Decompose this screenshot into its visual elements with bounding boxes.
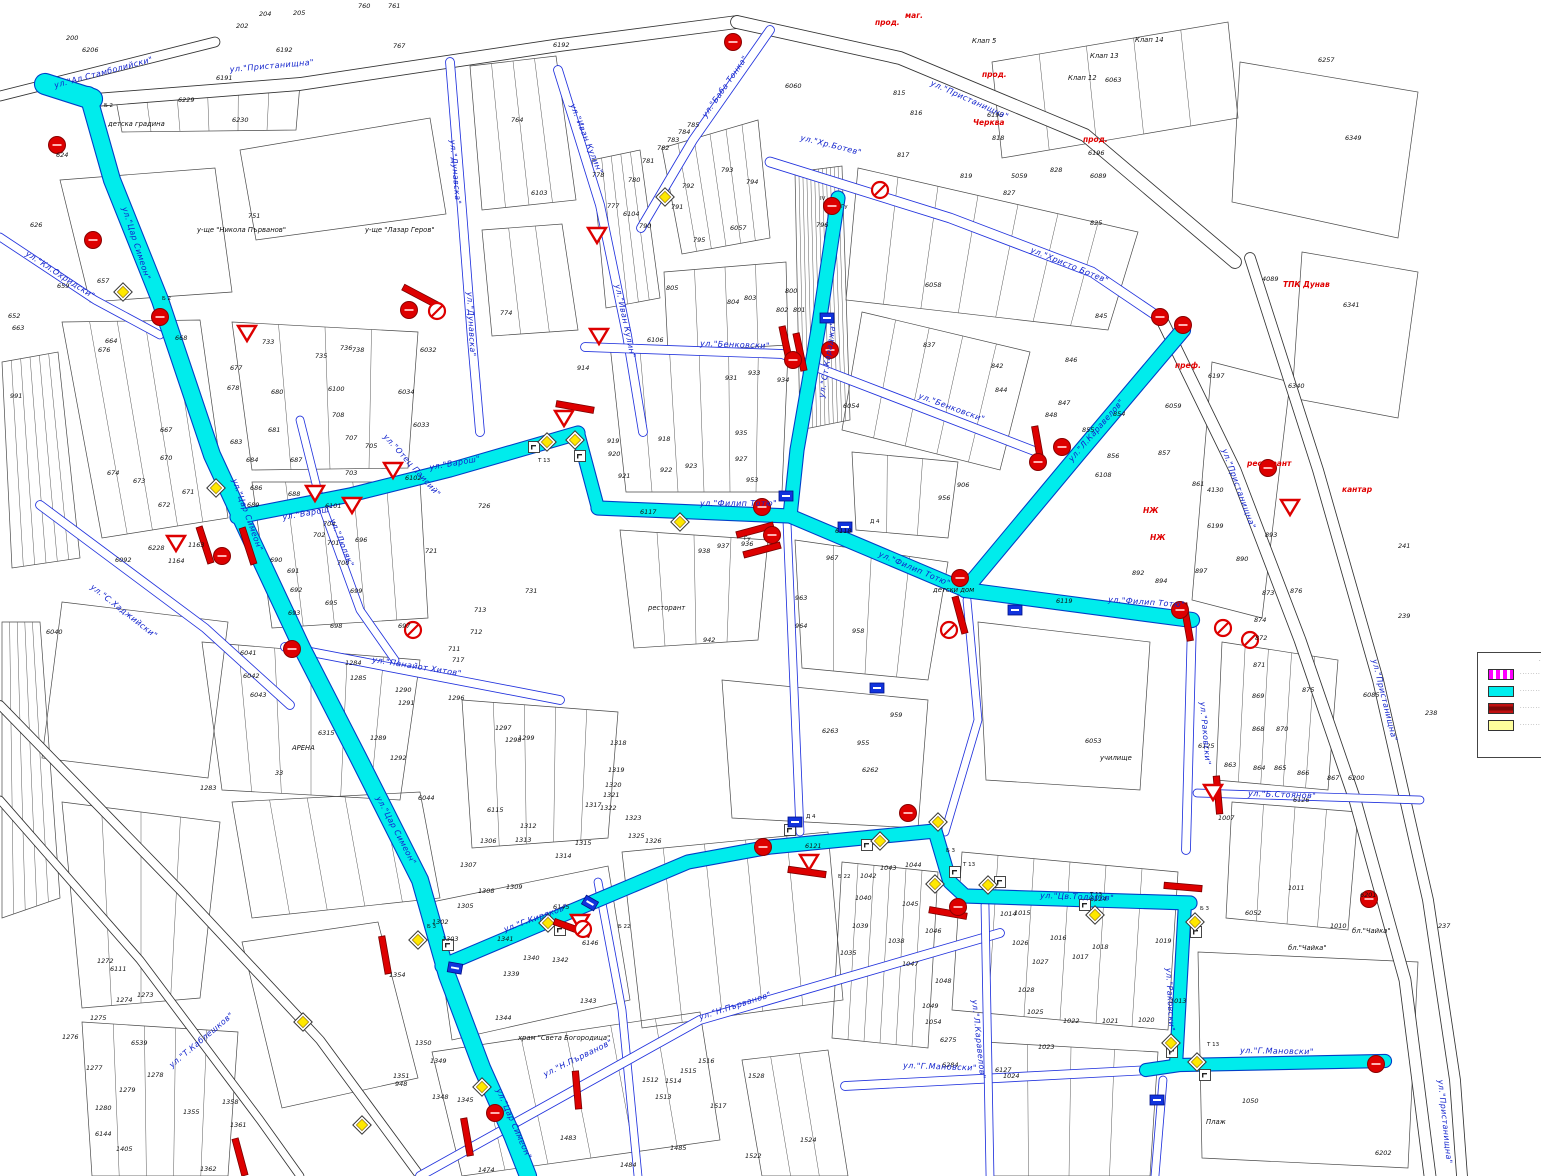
parcel-number: 825 (1090, 219, 1102, 227)
parcel-number: 1320 (605, 781, 622, 789)
poi-label: у-ще "Лазар Геров" (364, 226, 434, 234)
road-surface (787, 522, 800, 832)
parcel-number: 1358 (222, 1098, 239, 1106)
parcel-number: 1047 (902, 960, 919, 968)
stop-sign-icon (1030, 454, 1047, 471)
street-name-label: ул."Г.Мановски" (1239, 1046, 1314, 1056)
parcel-number: 708 (332, 411, 344, 419)
parcel-number: 1319 (608, 766, 625, 774)
poi-label: у-ще "Никола Първанов" (196, 226, 286, 234)
parcel-number: 6040 (46, 628, 63, 636)
stop-sign-icon (85, 232, 102, 249)
parcel-number: 1326 (645, 837, 662, 845)
no-entry-bar-icon (572, 1071, 582, 1109)
parcel-number: 953 (746, 476, 758, 484)
sign-code: Т 13 (537, 458, 551, 464)
parcel-number: 1284 (345, 659, 362, 667)
map-legend: ····· ··································… (1477, 652, 1541, 758)
poi-label: Клап 13 (1090, 52, 1119, 60)
priority-road-diamond-icon (409, 931, 427, 949)
parcel-number: 6058 (925, 281, 942, 289)
parcel-line (325, 327, 330, 469)
parcel-number: 874 (1254, 616, 1266, 624)
street-name-label: ул."Дунавска" (465, 291, 477, 357)
parcel-number: 870 (1276, 725, 1288, 733)
parcel-number: 1024 (1003, 1072, 1020, 1080)
parcel-number: 6146 (582, 939, 599, 947)
no-parking-icon (872, 182, 888, 198)
parcel-number: 1028 (1018, 986, 1035, 994)
parcel-number: 1308 (478, 887, 495, 895)
poi-label: ресторант (647, 604, 686, 612)
parcel-number: 686 (250, 484, 262, 492)
parcel-number: 869 (1252, 692, 1264, 700)
parcel-number: 1035 (840, 949, 857, 957)
parcel-line (727, 538, 731, 643)
parcel-number: 738 (352, 346, 364, 354)
stop-sign-icon (1368, 1056, 1385, 1073)
parcel-number: 683 (230, 438, 242, 446)
parcel-number: 933 (748, 369, 760, 377)
parcel-line (996, 205, 1018, 318)
parcel-number: 663 (12, 324, 24, 332)
parcel-number: 33 (275, 769, 283, 777)
parcel-number: 4130 (1207, 486, 1224, 494)
parcel-number: 818 (992, 134, 1004, 142)
parcel-number: 1043 (880, 864, 897, 872)
poi-label-red: ресторант (1246, 459, 1292, 468)
parcel-number: 1274 (116, 996, 133, 1004)
sign-plate-icon (575, 451, 586, 462)
parcel-line (102, 807, 112, 1006)
parcel-number: 894 (1155, 577, 1167, 585)
legend-swatch-magenta-icon (1488, 669, 1514, 680)
poi-label: бл."Чайка" (1288, 944, 1326, 952)
parcel-number: 6117 (640, 508, 657, 516)
parcel-number: 937 (717, 542, 730, 550)
parcel-number: 5059 (1011, 172, 1028, 180)
parcel-number: 844 (995, 386, 1007, 394)
street-name-label: ул."Баба Тонка" (700, 54, 750, 120)
parcel-line (704, 844, 722, 1017)
parcel-number: 6341 (1343, 301, 1360, 309)
parcel-number: 819 (960, 172, 972, 180)
parcel-line (144, 1026, 146, 1176)
parcel-number: 1314 (555, 852, 572, 860)
parcel-number: 241 (1398, 542, 1410, 550)
parcel-number: 780 (628, 176, 640, 184)
parcel-line (1039, 54, 1049, 150)
road-surface (95, 22, 737, 100)
parcel-number: 1309 (506, 883, 523, 891)
parcel-number: 921 (618, 472, 630, 480)
parcel-number: 1272 (97, 957, 114, 965)
parcel-number: 1299 (518, 734, 535, 742)
street-name-label: ул."Филип Тотю" (699, 499, 777, 508)
sign-code: Гу (744, 536, 751, 542)
parcel-line (1318, 810, 1327, 928)
parcel-number: 991 (10, 392, 22, 400)
parcel-line (535, 59, 553, 203)
parcel-number: 1351 (393, 1072, 410, 1080)
parcel-block (242, 922, 418, 1108)
street-name-label: ул."Пристанищна" (228, 58, 314, 74)
parcel-number: 815 (893, 89, 905, 97)
parcel-number: 761 (388, 2, 400, 10)
parcel-number: 868 (1252, 725, 1264, 733)
parcel-number: 935 (735, 429, 747, 437)
parcel-number: 6191 (216, 74, 233, 82)
parcel-number: 6192 (276, 46, 293, 54)
parcel-number: 6063 (1105, 76, 1122, 84)
parcel-number: 1517 (710, 1102, 727, 1110)
legend-label: ·········· (1520, 688, 1541, 694)
parcel-number: 964 (795, 622, 807, 630)
parcel-number: 670 (160, 454, 172, 462)
parcel-number: 713 (474, 606, 486, 614)
parcel-number: 6115 (487, 806, 504, 814)
parcel-number: 1163 (188, 541, 205, 549)
legend-swatch-yellow-icon (1488, 720, 1514, 731)
info-sign-icon (820, 313, 834, 323)
parcel-number: 1022 (1063, 1017, 1080, 1025)
parcel-number: 690 (270, 556, 282, 564)
parcel-number: 1344 (495, 1014, 512, 1022)
street-name-label: ул."Хр.Ботев" (799, 133, 863, 157)
parcel-number: 785 (687, 121, 699, 129)
parcel-line (513, 61, 529, 205)
yield-triangle-icon (800, 855, 818, 870)
no-parking-icon (941, 622, 957, 638)
street-name-label: ул."Кл.Охридски" (23, 249, 96, 301)
parcel-line (39, 355, 57, 561)
parcel-number: 1524 (800, 1136, 817, 1144)
stop-sign-icon (824, 198, 841, 215)
parcel-number: 1340 (523, 954, 540, 962)
parcel-line (1287, 807, 1295, 924)
stop-sign-icon (900, 805, 917, 822)
parcel-line (756, 265, 759, 347)
parcel-number: 955 (857, 739, 869, 747)
legend-item: ·········· (1488, 719, 1541, 731)
parcel-number: 1021 (1102, 1017, 1119, 1025)
street-name-label: ул."Ал.Стамболийски" (52, 55, 154, 90)
poi-label-red: прод. (875, 18, 900, 27)
parcel-number: 1283 (200, 784, 217, 792)
yield-triangle-icon (343, 498, 361, 513)
parcel-number: 4089 (1262, 275, 1279, 283)
parcel-number: 6349 (1345, 134, 1362, 142)
parcel-number: 791 (671, 203, 683, 211)
road-casing (1250, 258, 1462, 1176)
no-parking-icon (1215, 620, 1231, 636)
parcel-number: 783 (667, 136, 679, 144)
parcel-number: 6229 (178, 96, 195, 104)
road-surface (300, 420, 395, 660)
parcel-number: 1349 (430, 1057, 447, 1065)
parcel-block (1232, 62, 1418, 238)
sign-code: IV (820, 196, 826, 202)
parcel-number: 871 (1253, 661, 1265, 669)
parcel-number: 1010 (1330, 922, 1347, 930)
sign-code: Б 3 (427, 924, 437, 930)
parcel-number: 1306 (480, 837, 497, 845)
parcel-number: 927 (735, 455, 748, 463)
sign-code: Б 22 (618, 924, 631, 930)
parcel-line (937, 336, 963, 454)
parcel-number: 6340 (1288, 382, 1305, 390)
parcel-number: 792 (682, 182, 694, 190)
parcel-line (657, 533, 665, 647)
parcel-block (1292, 252, 1418, 418)
parcel-line (897, 557, 910, 678)
parcel-number: 1339 (503, 970, 520, 978)
parcel-number: 876 (1290, 587, 1302, 595)
parcel-line (1257, 805, 1264, 922)
parcel-number: 6054 (843, 402, 860, 410)
parcel-number: 200 (66, 34, 78, 42)
parcel-number: 1350 (415, 1039, 432, 1047)
parcel-block (482, 224, 578, 336)
stop-sign-icon (284, 641, 301, 658)
parcel-number: 6092 (115, 556, 132, 564)
parcel-line (345, 796, 365, 906)
parcel-number: 6044 (418, 794, 435, 802)
parcel-number: 938 (698, 547, 710, 555)
parcel-number: 837 (923, 341, 936, 349)
parcel-line (581, 710, 587, 840)
parcel-number: 6263 (822, 727, 839, 735)
parcel-number: 1292 (390, 754, 407, 762)
info-sign-icon (788, 817, 802, 827)
parcel-number: 847 (1058, 399, 1071, 407)
parcel-number: 6539 (131, 1039, 148, 1047)
parcel-line (771, 1057, 791, 1176)
parcel-number: 846 (1065, 356, 1077, 364)
sign-code: Б 3 (946, 848, 956, 854)
parcel-number: 805 (666, 284, 678, 292)
parcel-block (795, 540, 948, 680)
parcel-line (492, 64, 506, 208)
stop-sign-icon (1175, 317, 1192, 334)
yield-triangle-icon (590, 329, 608, 344)
poi-label-red: НЖ (1150, 533, 1166, 542)
parcel-number: 705 (365, 442, 377, 450)
parcel-number: 688 (288, 490, 300, 498)
street-name-label: ул."Филип Тотю" (876, 549, 951, 588)
parcel-number: 6230 (232, 116, 249, 124)
road-surface (1250, 258, 1462, 1176)
parcel-number: 919 (607, 437, 619, 445)
parcel-number: 6201 (1360, 891, 1377, 899)
parcel-number: 6033 (413, 421, 430, 429)
parcel-number: 6106 (647, 336, 664, 344)
parcel-line (787, 836, 803, 1006)
parcel-number: 956 (938, 494, 950, 502)
legend-label: ·········· (1520, 722, 1541, 728)
parcel-block (978, 622, 1150, 790)
parcel-line (864, 865, 874, 1041)
parcel-number: 205 (293, 9, 305, 17)
parcel-block (462, 700, 618, 848)
parcel-number: 1273 (137, 991, 154, 999)
parcel-line (695, 270, 699, 351)
parcel-number: 693 (288, 609, 300, 617)
parcel-line (799, 1053, 819, 1176)
parcel-line (694, 139, 711, 249)
parcel-number: 6119 (1056, 597, 1073, 605)
parcel-number: 696 (355, 536, 367, 544)
map-page: 2002022042056206619261916192622962306247… (0, 0, 1541, 1176)
parcel-number: 864 (1253, 764, 1265, 772)
info-sign-icon (779, 491, 793, 501)
parcel-number: 1361 (230, 1121, 247, 1129)
parcel-number: 923 (685, 462, 697, 470)
info-sign-icon (870, 683, 884, 693)
parcel-number: 1296 (448, 694, 465, 702)
parcel-number: 6257 (1318, 56, 1335, 64)
parcel-number: 767 (393, 42, 406, 50)
poi-label: детска градина (107, 120, 165, 128)
parcel-number: 699 (350, 587, 362, 595)
sign-code: Б 2 (104, 103, 113, 109)
map-canvas[interactable]: 2002022042056206619261916192622962306247… (0, 0, 1541, 1176)
parcel-line (554, 707, 556, 842)
parcel-number: 1474 (478, 1166, 495, 1174)
parcel-number: 204 (259, 10, 271, 18)
poi-label-red: кантар (1342, 485, 1373, 494)
parcel-number: 804 (727, 298, 739, 306)
info-sign-icon (447, 962, 463, 974)
parcel-number: 1025 (1027, 1008, 1044, 1016)
parcel-number: 698 (330, 622, 342, 630)
parcel-number: 918 (658, 435, 670, 443)
parcel-number: 959 (890, 711, 902, 719)
parcel-number: 948 (395, 1080, 407, 1088)
road-surface (450, 62, 480, 432)
parcel-number: 717 (452, 656, 465, 664)
parcel-number: 1303 (442, 935, 459, 943)
parcel-line (270, 800, 290, 914)
no-parking-icon (429, 303, 445, 319)
parcel-number: 6202 (1375, 1149, 1392, 1157)
legend-item: ·········· (1488, 685, 1541, 697)
parcel-number: 845 (1095, 312, 1107, 320)
poi-label-red: прод. (1083, 135, 1108, 144)
parcel-number: 1405 (116, 1145, 133, 1153)
parcel-number: 6228 (148, 544, 165, 552)
stop-sign-icon (401, 302, 418, 319)
priority-road-diamond-icon (114, 283, 132, 301)
parcel-number: 802 (776, 306, 788, 314)
parcel-number: 721 (425, 547, 437, 555)
parcel-number: 1019 (1155, 937, 1172, 945)
parcel-block (722, 680, 928, 828)
parcel-line (1238, 646, 1245, 782)
parcel-number: 794 (746, 178, 758, 186)
sign-code: Д 4 (806, 814, 816, 820)
stop-sign-icon (152, 309, 169, 326)
legend-label: ·········· (1520, 705, 1541, 711)
sign-code: Гу (841, 204, 848, 210)
parcel-number: 865 (1274, 764, 1286, 772)
parcel-line (113, 1024, 119, 1176)
parcel-number: 1307 (460, 861, 477, 869)
stop-sign-icon (764, 527, 781, 544)
parcel-number: 963 (795, 594, 807, 602)
parcel-number: 6121 (805, 842, 822, 850)
parcel-line (307, 798, 327, 910)
parcel-line (1028, 1045, 1029, 1176)
sign-code: Т 13 (962, 862, 976, 868)
parcel-number: 828 (1050, 166, 1062, 174)
poi-label-red: преф. (1175, 361, 1201, 370)
parcel-number: 6103 (531, 189, 548, 197)
parcel-number: 866 (1297, 769, 1309, 777)
sign-plate-icon (950, 867, 961, 878)
parcel-number: 684 (246, 456, 258, 464)
parcel-number: 1484 (620, 1161, 637, 1169)
parcel-number: 6059 (1165, 402, 1182, 410)
parcel-line (386, 482, 396, 620)
parcel-number: 782 (657, 144, 669, 152)
poi-label-red: Черква (973, 118, 1004, 127)
stop-sign-icon (1152, 309, 1169, 326)
parcel-number: 652 (8, 312, 20, 320)
parcel-line (171, 817, 181, 1001)
parcel-number: 680 (271, 388, 283, 396)
info-sign-icon (1150, 1095, 1164, 1105)
parcel-number: 1279 (119, 1086, 136, 1094)
parcel-number: 6275 (940, 1036, 957, 1044)
parcel-number: 856 (1107, 452, 1119, 460)
parcel-number: 842 (991, 362, 1003, 370)
parcel-number: 781 (642, 157, 654, 165)
poi-label-red: маг. (905, 11, 923, 20)
parcel-number: 1485 (670, 1144, 687, 1152)
parcel-number: 731 (525, 587, 537, 595)
parcel-number: 784 (678, 128, 690, 136)
parcel-number: 6060 (785, 82, 802, 90)
parcel-number: 848 (1045, 411, 1057, 419)
parcel-number: 1280 (95, 1104, 112, 1112)
parcel-line (17, 622, 25, 910)
parcel-number: 942 (703, 636, 715, 644)
parcel-line (694, 535, 696, 644)
parcel-line (880, 867, 890, 1043)
parcel-number: 673 (133, 477, 145, 485)
parcel-number: 6315 (318, 729, 335, 737)
parcel-number: 1354 (389, 971, 406, 979)
parcel-number: 1020 (1138, 1016, 1155, 1024)
parcel-number: 1016 (1050, 934, 1067, 942)
legend-swatch-red-icon (1488, 703, 1514, 714)
stop-sign-icon (1054, 439, 1071, 456)
parcel-number: 692 (290, 586, 302, 594)
parcel-number: 897 (1195, 567, 1208, 575)
yield-triangle-icon (238, 326, 256, 341)
parcel-number: 711 (448, 645, 460, 653)
parcel-number: 795 (693, 236, 705, 244)
parcel-line (958, 195, 978, 312)
parcel-number: 1312 (520, 822, 537, 830)
parcel-number: 1322 (600, 804, 617, 812)
sign-code: Б 3 (1200, 906, 1210, 912)
parcel-number: 1017 (1072, 953, 1089, 961)
parcel-number: 671 (182, 488, 194, 496)
parcel-line (1134, 38, 1144, 134)
poi-label: Клап 5 (972, 37, 996, 45)
